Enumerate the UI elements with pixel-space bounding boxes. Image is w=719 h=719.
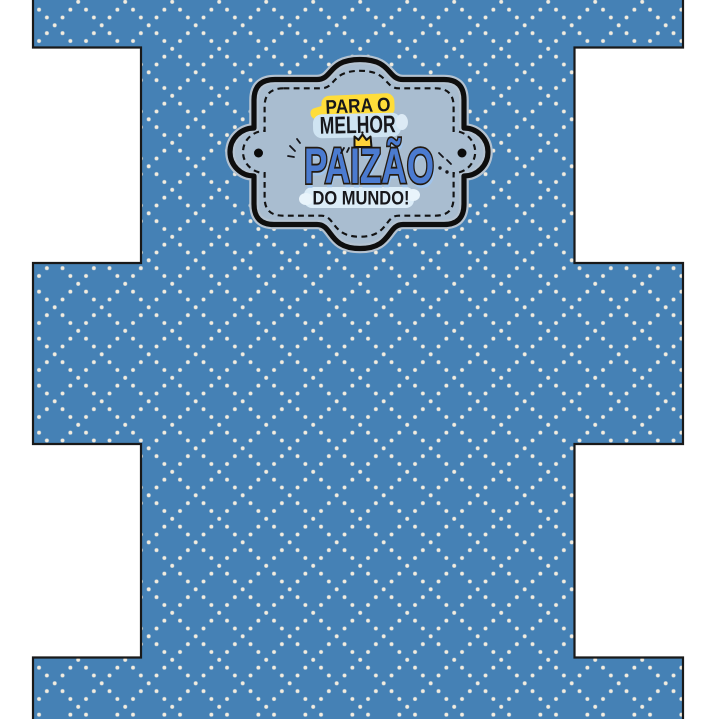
svg-text:MELHOR: MELHOR — [319, 111, 396, 140]
